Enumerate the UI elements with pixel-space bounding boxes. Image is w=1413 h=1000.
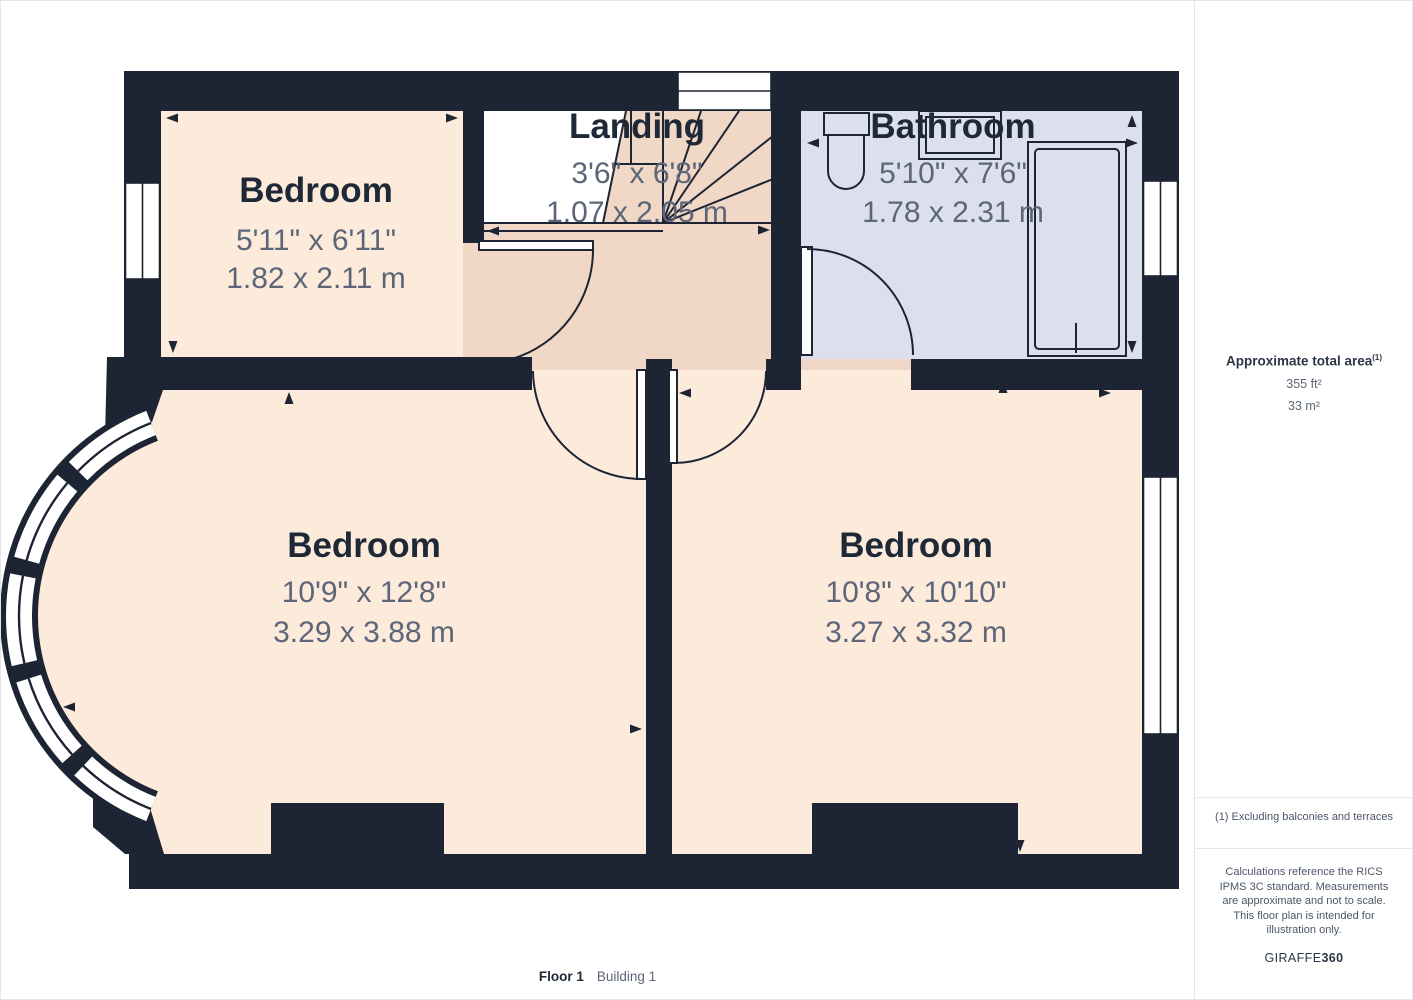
total-area-superscript: (1) — [1372, 353, 1382, 362]
info-sidebar: Approximate total area(1) 355 ft² 33 m² … — [1194, 1, 1413, 999]
room-name-bathroom: Bathroom — [870, 107, 1035, 146]
brand-regular: GIRAFFE — [1264, 951, 1321, 965]
chimney-breast-left — [271, 803, 444, 854]
total-area-label: Approximate total area — [1226, 354, 1372, 369]
room-metric-bedroom-left: 3.29 x 3.88 m — [273, 616, 455, 649]
wall-mid-horizontal — [149, 357, 532, 390]
room-metric-landing: 1.07 x 2.05 m — [546, 196, 728, 229]
room-name-landing: Landing — [569, 107, 705, 146]
room-name-bedroom-top: Bedroom — [239, 171, 393, 210]
disclaimer-text: Calculations reference the RICS IPMS 3C … — [1214, 865, 1394, 938]
building-number-label: Building 1 — [597, 969, 656, 984]
room-imperial-landing: 3'6" x 6'8" — [571, 157, 702, 190]
wall-landing-stub — [766, 359, 801, 390]
area-footnote: (1) Excluding balconies and terraces — [1195, 811, 1413, 823]
window-left — [126, 183, 160, 279]
room-imperial-bedroom-left: 10'9" x 12'8" — [282, 576, 447, 609]
window-top — [678, 72, 771, 110]
room-imperial-bathroom: 5'10" x 7'6" — [879, 157, 1027, 190]
room-metric-bedroom-right: 3.27 x 3.32 m — [825, 616, 1007, 649]
floor-building-label: Floor 1 Building 1 — [1, 969, 1194, 984]
chimney-breast-right — [812, 803, 1018, 854]
window-bedroom-right — [1144, 477, 1178, 734]
wall-under-bathroom — [911, 359, 1143, 390]
sidebar-divider-2 — [1195, 848, 1413, 849]
total-area-ft: 355 ft² — [1195, 377, 1413, 391]
room-metric-bedroom-top: 1.82 x 2.11 m — [226, 262, 406, 295]
floorplan-widget: Bedroom 5'11" x 6'11" 1.82 x 2.11 m Land… — [0, 0, 1413, 1000]
floor-number-label: Floor 1 — [539, 969, 584, 984]
bedroom-right-floor — [672, 370, 1143, 854]
brand-bold: 360 — [1321, 951, 1343, 965]
room-imperial-bedroom-top: 5'11" x 6'11" — [236, 224, 396, 257]
window-bathroom — [1144, 181, 1178, 276]
room-name-bedroom-right: Bedroom — [839, 526, 993, 565]
total-area-title: Approximate total area(1) — [1195, 353, 1413, 369]
bedroom-left-door-floor — [532, 370, 646, 392]
sidebar-divider-1 — [1195, 797, 1413, 798]
wall-top — [124, 71, 1179, 111]
room-name-bedroom-left: Bedroom — [287, 526, 441, 565]
room-imperial-bedroom-right: 10'8" x 10'10" — [825, 576, 1006, 609]
total-area-m: 33 m² — [1195, 399, 1413, 413]
room-metric-bathroom: 1.78 x 2.31 m — [862, 196, 1044, 229]
wall-bedroom-landing — [463, 111, 484, 243]
wall-landing-bathroom — [771, 111, 801, 359]
landing-doorway-floor — [463, 243, 484, 359]
floorplan-drawing: Bedroom 5'11" x 6'11" 1.82 x 2.11 m Land… — [1, 1, 1194, 1000]
giraffe360-logo: GIRAFFE360 — [1195, 951, 1413, 965]
total-area-block: Approximate total area(1) 355 ft² 33 m² — [1195, 353, 1413, 413]
